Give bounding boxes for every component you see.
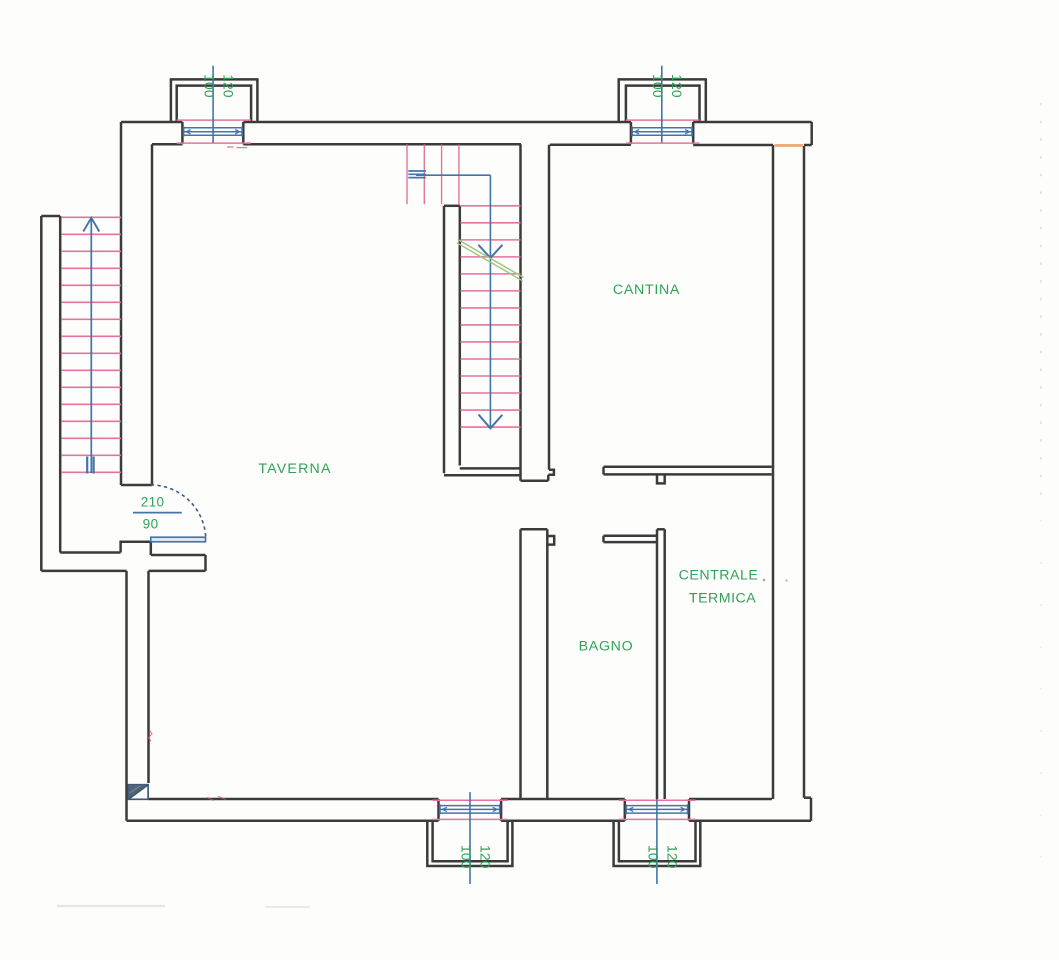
svg-text:TAVERNA: TAVERNA xyxy=(258,461,331,477)
svg-text:100: 100 xyxy=(458,845,473,869)
svg-text:90: 90 xyxy=(143,517,159,532)
svg-text:100: 100 xyxy=(645,845,660,869)
svg-text:120: 120 xyxy=(477,845,492,869)
svg-text:120: 120 xyxy=(664,845,679,869)
svg-text:210: 210 xyxy=(141,495,165,510)
svg-text:CENTRALE: CENTRALE xyxy=(679,568,759,584)
svg-text:100: 100 xyxy=(650,74,665,98)
svg-text:120: 120 xyxy=(669,74,684,98)
svg-text:BAGNO: BAGNO xyxy=(579,639,634,655)
svg-text:CANTINA: CANTINA xyxy=(613,282,680,298)
svg-text:100: 100 xyxy=(202,74,217,98)
svg-text:TERMICA: TERMICA xyxy=(689,591,756,607)
svg-text:120: 120 xyxy=(221,74,236,98)
